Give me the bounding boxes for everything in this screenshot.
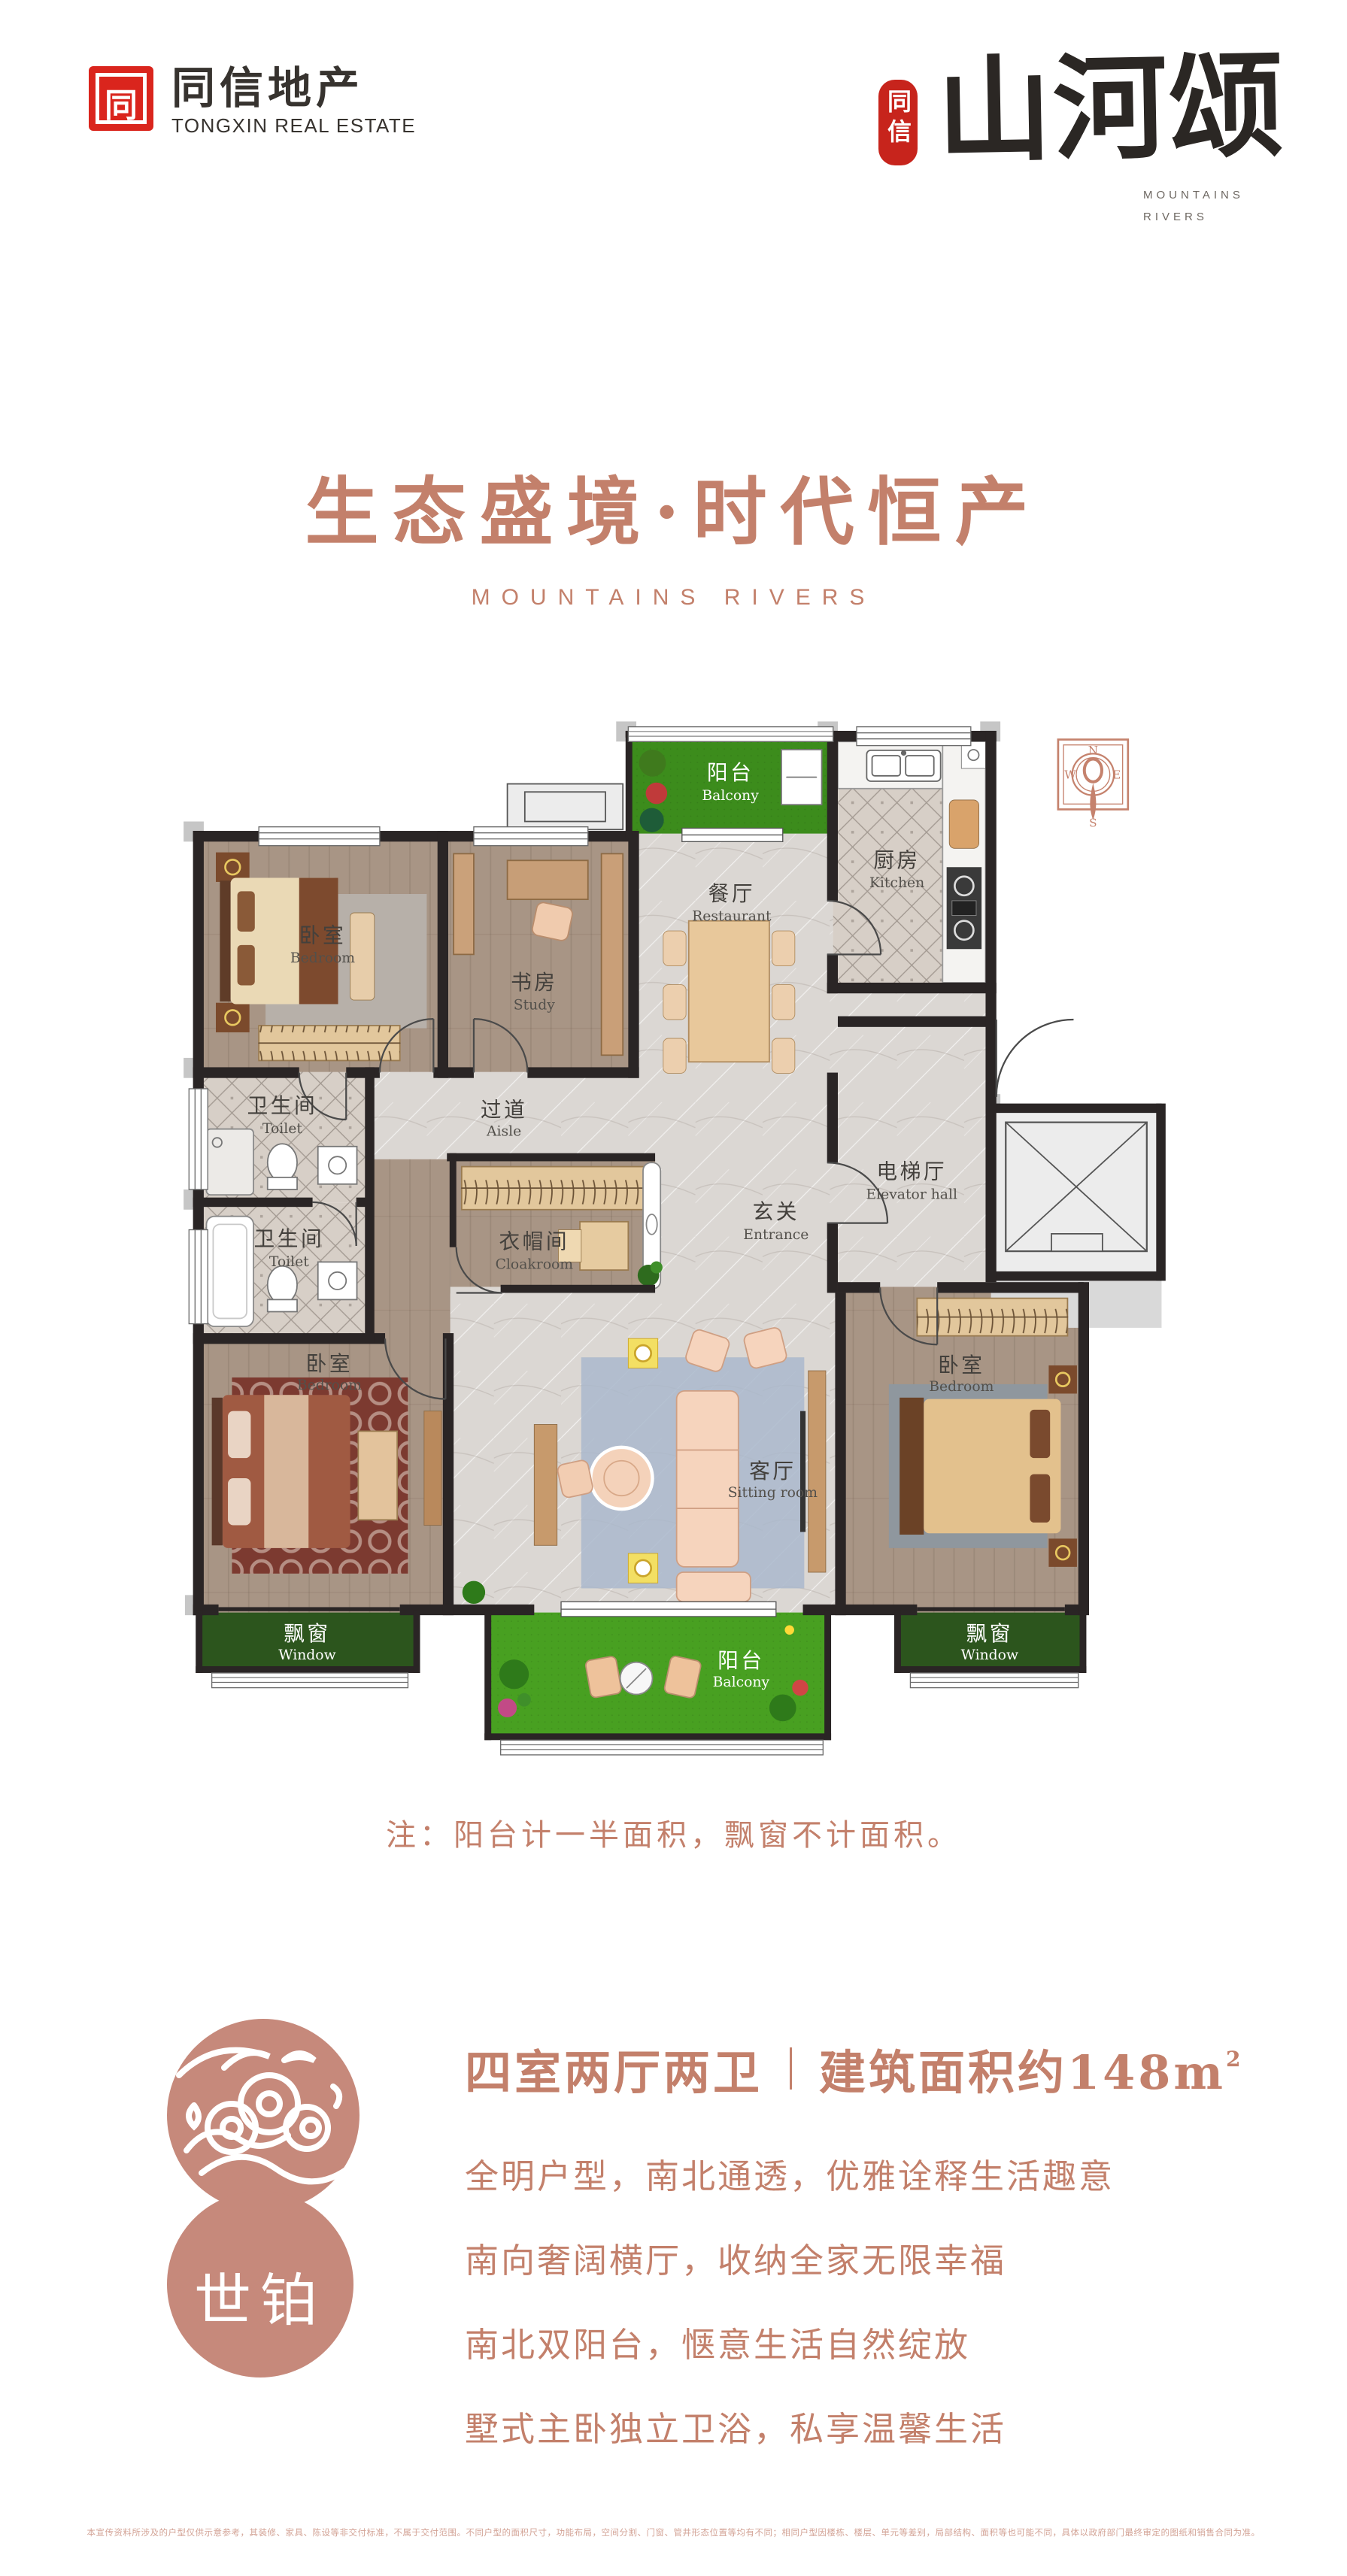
label-elevator-hall-en: Elevator hall [866,1186,957,1202]
label-aisle-cn: 过道 [481,1097,528,1122]
label-entrance-cn: 玄关 [753,1199,800,1224]
label-aisle-en: Aisle [486,1124,521,1140]
area-label: 建筑面积约148m2 [819,2035,1244,2102]
label-toilet-south-en: Toilet [269,1254,309,1270]
label-study-cn: 书房 [511,970,558,995]
hero-title: 生态盛境·时代恒产 [0,453,1347,559]
compass-w: W [1064,768,1076,781]
sliding-door-icon [682,828,783,841]
bed-sw-icon [212,1377,441,1574]
brand-seal: 同信 [878,80,918,165]
compass-e: E [1112,768,1121,781]
label-balcony-south-en: Balcony [713,1674,770,1690]
logo-en: TONGXIN REAL ESTATE [171,114,416,138]
window-icon [189,1230,208,1324]
brand-mark: 同信 山河颂 MOUNTAINS RIVERS [872,44,1294,247]
floor-plan: 阳台 Balcony 厨房 Kitchen 餐厅 Restaurant 卧室 B… [113,699,1211,1767]
label-sitting-cn: 客厅 [749,1459,796,1483]
label-sitting-en: Sitting room [728,1485,818,1501]
logo-glyph: 同 [89,78,153,126]
label-toilet-north-en: Toilet [262,1121,302,1137]
logo-text: 同信地产 TONGXIN REAL ESTATE [171,66,416,138]
label-cloakroom-en: Cloakroom [496,1256,574,1272]
label-bedroom-se-cn: 卧室 [938,1353,985,1377]
label-window-se-en: Window [961,1647,1018,1663]
hero-subtitle: MOUNTAINS RIVERS [0,585,1347,611]
tongxin-logo: 同 同信地产 TONGXIN REAL ESTATE [89,66,416,138]
closet-nw-icon [259,1026,400,1060]
brand-subtitle: MOUNTAINS RIVERS [1143,185,1244,228]
info-block: 四室两厅两卫 建筑面积约148m2 全明户型，南北通透，优雅诠释生活趣意 南向奢… [465,2035,1292,2486]
corridor-floor [370,1159,451,1341]
poster-page: 同 同信地产 TONGXIN REAL ESTATE 同信 山河颂 MOUNTA… [0,0,1347,2576]
label-elevator-hall-cn: 电梯厅 [876,1159,947,1184]
tongxin-logo-icon: 同 [89,66,153,131]
label-study-en: Study [514,998,555,1014]
label-bedroom-nw-cn: 卧室 [299,923,346,947]
label-bedroom-nw-en: Bedroom [290,950,355,966]
label-restaurant-en: Restaurant [692,909,772,925]
sliding-door-icon [561,1602,776,1617]
hero-section: 生态盛境·时代恒产 MOUNTAINS RIVERS [0,453,1347,611]
brand-calligraphy: 山河颂 [936,48,1286,168]
feature-item: 南北双阳台，惬意生活自然绽放 [465,2317,1292,2366]
dining-table-icon [663,921,795,1074]
label-entrance-en: Entrance [743,1227,809,1243]
compass-icon: N W E S [1058,740,1128,830]
shipo-badge: 世铂 [156,2015,375,2391]
label-toilet-north-cn: 卫生间 [247,1093,318,1118]
room-elevator-hall-floor [830,988,991,1286]
feature-item: 墅式主卧独立卫浴，私享温馨生活 [465,2402,1292,2450]
label-bedroom-se-en: Bedroom [929,1379,994,1395]
info-title: 四室两厅两卫 建筑面积约148m2 [465,2035,1292,2102]
disclaimer: 本宣传资料所涉及的户型仅供示意参考，其装修、家具、陈设等非交付标准，不属于交付范… [0,2526,1347,2538]
bay-canopy-icon [508,784,623,830]
label-window-sw-cn: 飘窗 [284,1621,331,1646]
label-restaurant-cn: 餐厅 [708,881,756,906]
compass-n: N [1088,744,1098,757]
logo-cn: 同信地产 [171,66,416,110]
title-divider [790,2047,792,2090]
layout-label: 四室两厅两卫 [465,2035,763,2102]
window-icon [189,1089,208,1190]
bay-window-rail-icon [910,1673,1078,1688]
window-icon [474,827,588,846]
window-icon [857,727,971,746]
label-toilet-south-cn: 卫生间 [253,1226,324,1251]
label-balcony-north-cn: 阳台 [707,760,754,785]
label-bedroom-sw-en: Bedroom [297,1377,362,1393]
label-bedroom-sw-cn: 卧室 [306,1351,353,1376]
window-icon [259,827,380,846]
feature-item: 全明户型，南北通透，优雅诠释生活趣意 [465,2149,1292,2198]
area-text: 建筑面积约148m [819,2045,1226,2100]
brand-sub1: MOUNTAINS [1143,185,1244,207]
feature-item: 南向奢阔横厅，收纳全家无限幸福 [465,2233,1292,2282]
label-window-sw-en: Window [278,1647,335,1663]
feature-list: 全明户型，南北通透，优雅诠释生活趣意 南向奢阔横厅，收纳全家无限幸福 南北双阳台… [465,2149,1292,2450]
brand-sub2: RIVERS [1143,207,1244,229]
label-window-se-cn: 飘窗 [966,1621,1014,1646]
compass-s: S [1089,817,1097,830]
label-cloakroom-cn: 衣帽间 [499,1229,569,1254]
badge-label: 世铂 [156,2254,364,2337]
brand-seal-text: 同信 [881,89,915,149]
balcony-rail-icon [501,1740,824,1755]
area-sup: 2 [1226,2047,1243,2071]
label-kitchen-cn: 厨房 [873,847,921,872]
label-balcony-north-en: Balcony [702,788,759,804]
floor-plan-svg: 阳台 Balcony 厨房 Kitchen 餐厅 Restaurant 卧室 B… [113,699,1211,1767]
label-balcony-south-cn: 阳台 [717,1648,765,1673]
label-kitchen-en: Kitchen [869,875,924,891]
area-note: 注：阳台计一半面积，飘窗不计面积。 [0,1811,1347,1854]
cloud-medallion-icon [167,2019,360,2211]
balcony-rail-icon [628,727,833,742]
bay-window-rail-icon [212,1673,408,1688]
